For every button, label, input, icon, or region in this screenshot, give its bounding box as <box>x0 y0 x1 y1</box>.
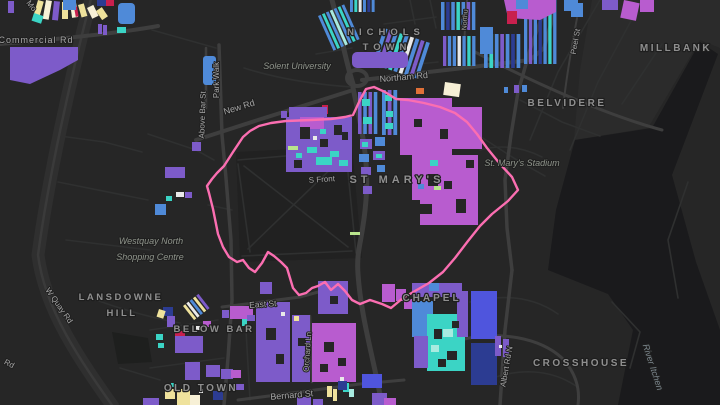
building <box>334 125 342 135</box>
building <box>222 310 229 318</box>
map-label-below-bar: BELOW BAR <box>173 324 254 335</box>
building <box>118 3 135 24</box>
building <box>300 127 310 139</box>
building <box>327 386 332 397</box>
building <box>384 398 396 405</box>
map-label-westquay-north: Westquay North <box>119 236 183 246</box>
building <box>434 186 441 190</box>
building <box>313 399 323 405</box>
building <box>414 119 422 127</box>
building-terrace <box>451 2 454 30</box>
building <box>117 27 126 33</box>
building-terrace <box>372 0 375 12</box>
building <box>247 315 255 321</box>
building <box>294 160 302 168</box>
building <box>155 204 166 215</box>
map-label-lansdowne: LANSDOWNE <box>79 292 164 303</box>
building <box>430 160 438 166</box>
building-terrace <box>462 36 465 66</box>
building <box>431 345 439 352</box>
building <box>185 192 192 198</box>
building <box>362 99 370 106</box>
building <box>400 98 452 155</box>
building <box>320 364 328 372</box>
building <box>363 117 372 124</box>
map-label-crosshouse: CROSSHOUSE <box>533 358 629 369</box>
map-label-s-front: S Front <box>308 174 336 185</box>
building <box>443 82 461 97</box>
building-terrace <box>363 92 367 134</box>
building <box>602 0 618 10</box>
building <box>499 345 502 348</box>
building <box>640 0 654 12</box>
building <box>260 282 272 294</box>
building-terrace <box>446 2 449 30</box>
map-label-town: TOWN <box>363 42 412 53</box>
building <box>516 0 528 9</box>
building <box>438 359 446 367</box>
building <box>320 129 326 134</box>
building <box>158 343 164 348</box>
building <box>281 312 285 316</box>
building-terrace <box>369 92 373 134</box>
building <box>8 1 14 13</box>
building <box>349 389 354 397</box>
building <box>97 0 106 6</box>
building <box>362 374 382 388</box>
building <box>386 111 393 117</box>
building <box>443 329 453 337</box>
building <box>375 137 385 146</box>
building <box>98 24 102 34</box>
building <box>266 328 276 340</box>
building <box>342 132 348 140</box>
map-label-belvidere: BELVIDERE <box>528 98 607 109</box>
building <box>350 232 360 235</box>
building <box>185 362 200 380</box>
building <box>471 343 497 385</box>
building <box>338 381 347 390</box>
building-terrace <box>458 36 461 66</box>
building-terrace <box>456 2 459 30</box>
map-canvas[interactable]: NICHOLSTOWNMILLBANKBELVIDEREST MARY'SCHA… <box>0 0 720 405</box>
building <box>514 85 519 93</box>
building <box>429 283 439 291</box>
building <box>333 389 337 401</box>
building <box>296 153 302 158</box>
building <box>385 123 393 129</box>
building-terrace <box>453 36 456 66</box>
building <box>447 351 457 360</box>
building <box>376 154 382 158</box>
building <box>434 329 442 339</box>
building <box>176 192 184 197</box>
building <box>316 157 332 165</box>
building <box>440 129 448 139</box>
building-terrace <box>374 92 378 134</box>
building <box>444 181 452 189</box>
building <box>471 291 497 339</box>
building-terrace <box>472 36 475 66</box>
building-terrace <box>354 0 357 12</box>
map-label-park-walk: Park Walk <box>212 61 221 98</box>
building <box>276 354 284 364</box>
building <box>377 165 385 172</box>
building-terrace <box>511 34 515 68</box>
map-label-solent-university: Solent University <box>263 61 331 71</box>
map-label-east-st: East St <box>249 298 278 310</box>
map-label-old-town: OLD TOWN <box>164 383 238 394</box>
building <box>206 365 220 377</box>
building <box>324 342 334 352</box>
map-label-nichols: NICHOLS <box>347 27 425 38</box>
building <box>362 142 368 147</box>
building <box>165 167 185 178</box>
building-terrace <box>495 34 499 68</box>
building <box>480 27 493 54</box>
building <box>571 3 583 17</box>
building <box>320 139 328 147</box>
building <box>106 0 114 6</box>
building <box>281 111 287 118</box>
building-terrace <box>443 36 446 66</box>
building <box>192 142 201 151</box>
building-terrace <box>350 0 353 12</box>
building <box>352 52 408 68</box>
building <box>330 296 338 304</box>
building-terrace <box>359 0 362 12</box>
building <box>294 316 299 321</box>
map-label-st-mary-s: ST MARY'S <box>349 174 444 186</box>
building <box>456 199 466 213</box>
building <box>339 160 348 166</box>
map-label-st-mary-s-stadium: St. Mary's Stadium <box>484 158 560 168</box>
map-label-shopping-centre: Shopping Centre <box>116 252 184 262</box>
building <box>103 25 107 35</box>
building <box>338 358 346 366</box>
building-terrace <box>517 34 521 68</box>
building <box>143 398 159 405</box>
building <box>63 0 76 10</box>
building <box>289 107 327 118</box>
building <box>340 377 344 381</box>
map-label-hill: HILL <box>106 308 137 319</box>
building <box>382 284 395 302</box>
building <box>522 85 527 92</box>
building <box>507 11 517 24</box>
building <box>190 395 200 405</box>
map-label-millbank: MILLBANK <box>640 43 712 54</box>
building <box>330 151 339 157</box>
building-terrace <box>441 2 444 30</box>
map-label-above-bar-st: Above Bar St <box>197 90 208 138</box>
building-terrace <box>500 34 504 68</box>
building-terrace <box>448 36 451 66</box>
building <box>420 204 432 214</box>
building <box>313 136 317 140</box>
building-terrace <box>506 34 510 68</box>
building <box>466 160 474 168</box>
building-terrace <box>467 36 470 66</box>
map-label-chapel: CHAPEL <box>402 293 461 304</box>
building <box>288 146 298 150</box>
building <box>414 336 428 368</box>
building <box>231 370 241 378</box>
building <box>416 88 424 94</box>
building-terrace <box>472 2 475 30</box>
map-label-commercial-rd: Commercial Rd <box>0 35 74 45</box>
building-terrace <box>363 0 366 12</box>
building <box>359 154 369 162</box>
building <box>452 321 459 328</box>
building <box>156 334 163 340</box>
building <box>363 186 372 194</box>
map-viewport[interactable]: NICHOLSTOWNMILLBANKBELVIDEREST MARY'SCHA… <box>0 0 720 405</box>
building <box>312 323 356 382</box>
building-terrace <box>367 0 370 12</box>
building <box>175 336 203 353</box>
map-label-northu: Northu <box>461 9 469 31</box>
building <box>504 87 508 93</box>
building <box>307 147 317 153</box>
building <box>166 196 172 201</box>
